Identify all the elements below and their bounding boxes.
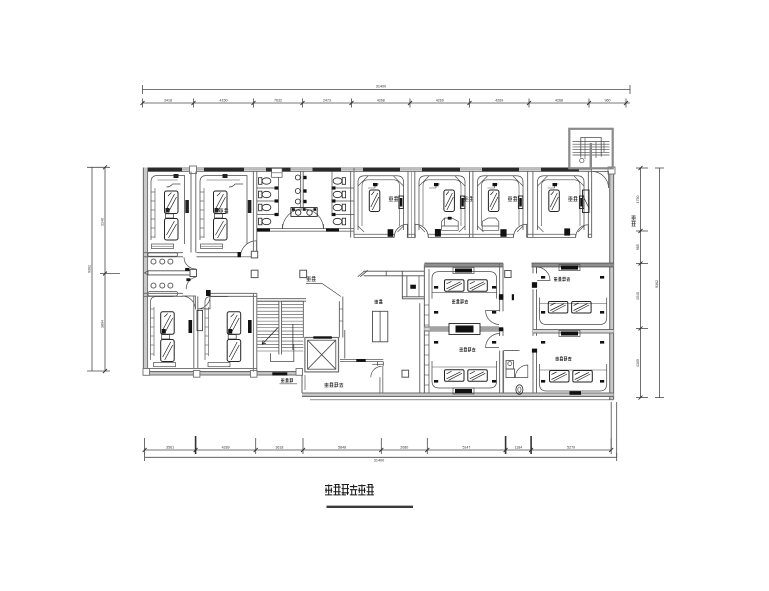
svg-text:7632: 7632 <box>274 99 282 103</box>
svg-text:31400: 31400 <box>376 85 387 89</box>
svg-text:985: 985 <box>636 244 640 250</box>
svg-text:3418: 3418 <box>164 99 172 103</box>
svg-text:4289: 4289 <box>222 446 230 450</box>
svg-text:3140: 3140 <box>101 218 105 226</box>
svg-text:1750: 1750 <box>636 196 640 204</box>
svg-text:5147: 5147 <box>462 446 470 450</box>
svg-text:4268: 4268 <box>377 99 385 103</box>
svg-text:1184: 1184 <box>514 446 522 450</box>
svg-text:4150: 4150 <box>220 99 228 103</box>
svg-text:31400: 31400 <box>374 459 385 463</box>
svg-text:4269: 4269 <box>436 99 444 103</box>
svg-text:960: 960 <box>605 99 611 103</box>
svg-text:3618: 3618 <box>275 446 283 450</box>
svg-text:4269: 4269 <box>495 99 503 103</box>
svg-text:3894: 3894 <box>101 320 105 328</box>
svg-text:2080: 2080 <box>400 446 408 450</box>
svg-text:5848: 5848 <box>338 446 346 450</box>
svg-text:3561: 3561 <box>166 446 174 450</box>
svg-text:9362: 9362 <box>655 280 659 288</box>
svg-text:1545: 1545 <box>636 292 640 300</box>
svg-text:4268: 4268 <box>555 99 563 103</box>
svg-text:9362: 9362 <box>88 265 92 273</box>
svg-text:2473: 2473 <box>323 99 331 103</box>
svg-text:5279: 5279 <box>567 446 575 450</box>
svg-text:4305: 4305 <box>636 359 640 367</box>
